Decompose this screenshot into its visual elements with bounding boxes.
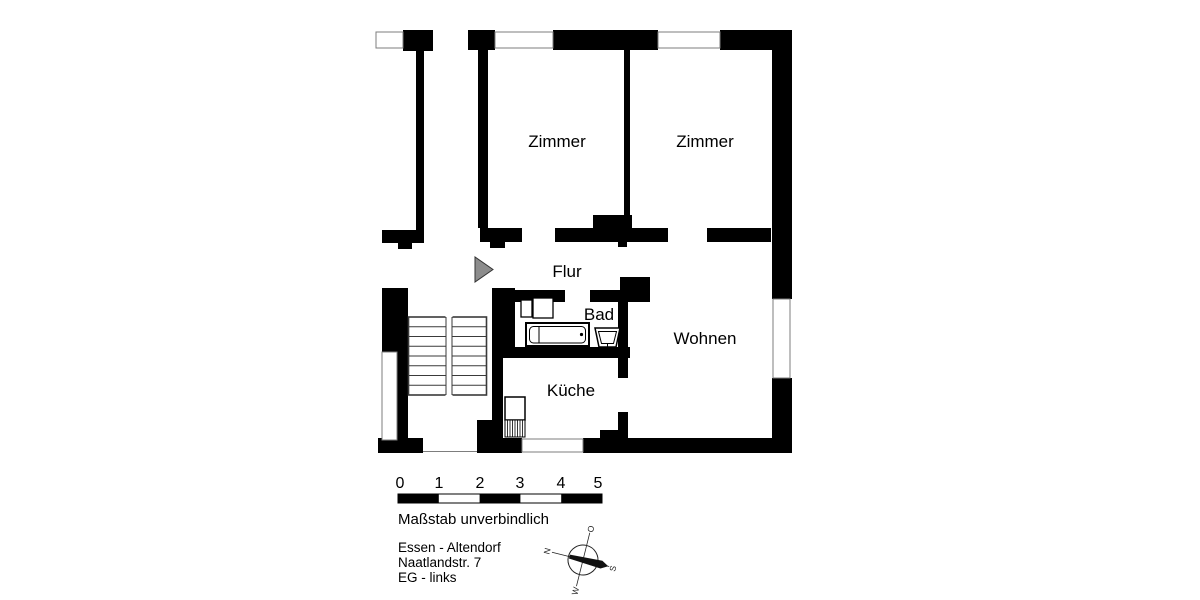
scale-tick-3: 3	[516, 475, 525, 492]
wall-nw-horizontal	[382, 230, 416, 243]
stove-hatch-lines	[508, 420, 523, 437]
wall-bad-corner-chunk	[620, 277, 650, 302]
wall-flur-north-a	[480, 228, 522, 242]
wall-zimmer1-left	[478, 50, 488, 228]
wall-flur-north-b-stub	[618, 242, 627, 247]
wall-bottom-b	[477, 438, 522, 453]
scale-tick-4: 4	[557, 475, 566, 492]
wall-nw-vertical	[416, 51, 424, 243]
wall-flur-north-b	[555, 228, 668, 242]
location-block: Essen - Altendorf Naatlandstr. 7 EG - li…	[398, 540, 501, 585]
wall-bad-top-b	[590, 290, 620, 302]
compass-label-east: O	[585, 524, 596, 533]
wall-zimmer-divider-foot	[593, 215, 632, 228]
wall-zimmer-divider	[624, 50, 630, 215]
compass-label-south: S	[607, 564, 618, 572]
wall-stair-left-thick	[382, 288, 408, 352]
label-flur: Flur	[552, 262, 582, 281]
wall-nw-stub	[398, 243, 412, 249]
label-zimmer-2: Zimmer	[676, 132, 734, 151]
staircase	[409, 316, 487, 396]
wall-flur-north-a-stub	[490, 242, 505, 248]
wall-kueche-step	[600, 430, 628, 438]
wall-stair-left-narrow	[397, 352, 408, 440]
window-kueche	[522, 439, 583, 452]
scale-note: Maßstab unverbindlich	[398, 511, 549, 528]
label-bad: Bad	[584, 305, 614, 324]
wall-bottom-c	[583, 438, 792, 453]
bathtub-drain	[580, 333, 583, 336]
wall-nw-block	[403, 30, 433, 51]
stove-icon	[505, 397, 525, 420]
compass-needle-icon	[568, 553, 609, 570]
label-wohnen: Wohnen	[673, 329, 736, 348]
window-northwest	[376, 32, 403, 48]
wall-top-a	[468, 30, 495, 50]
wall-flur-north-c	[707, 228, 771, 242]
window-zimmer1	[495, 32, 553, 48]
window-wohnen	[773, 299, 790, 378]
room-labels: Zimmer Zimmer Flur Bad Küche Wohnen	[528, 132, 736, 400]
window-zimmer2	[658, 32, 720, 48]
scale-bar-segment-black	[480, 494, 521, 503]
wall-stair-right-thick	[492, 288, 515, 352]
scale-tick-5: 5	[594, 475, 603, 492]
location-street: Naatlandstr. 7	[398, 555, 481, 570]
washbasin-icon	[521, 300, 532, 317]
floor-plan-drawing: Zimmer Zimmer Flur Bad Küche Wohnen 0 1 …	[0, 0, 1200, 600]
scale-tick-0: 0	[396, 475, 405, 492]
scale-bar-segment-black	[398, 494, 439, 503]
scale-tick-2: 2	[476, 475, 485, 492]
compass-label-north: N	[542, 547, 553, 555]
scale-bar-segment-black	[561, 494, 602, 503]
entrance-arrow-icon	[475, 257, 493, 282]
label-kueche: Küche	[547, 381, 595, 400]
scale-tick-1: 1	[435, 475, 444, 492]
scale-bar: 0 1 2 3 4 5 Maßstab unverbindlich	[396, 475, 603, 528]
wall-bad-bottom	[500, 347, 630, 358]
stair-mid-gap	[446, 316, 453, 396]
wall-top-b	[553, 30, 658, 50]
compass-label-west: W	[569, 586, 581, 596]
washing-machine-icon	[533, 298, 553, 318]
wall-stair-right-corner	[477, 420, 503, 438]
label-zimmer-1: Zimmer	[528, 132, 586, 151]
kitchen-fixtures	[505, 397, 525, 437]
wall-kueche-wohnen-upper	[618, 302, 628, 378]
window-stairwell	[382, 352, 397, 440]
location-city: Essen - Altendorf	[398, 540, 501, 555]
location-floor: EG - links	[398, 570, 457, 585]
wall-right-a	[772, 30, 792, 299]
